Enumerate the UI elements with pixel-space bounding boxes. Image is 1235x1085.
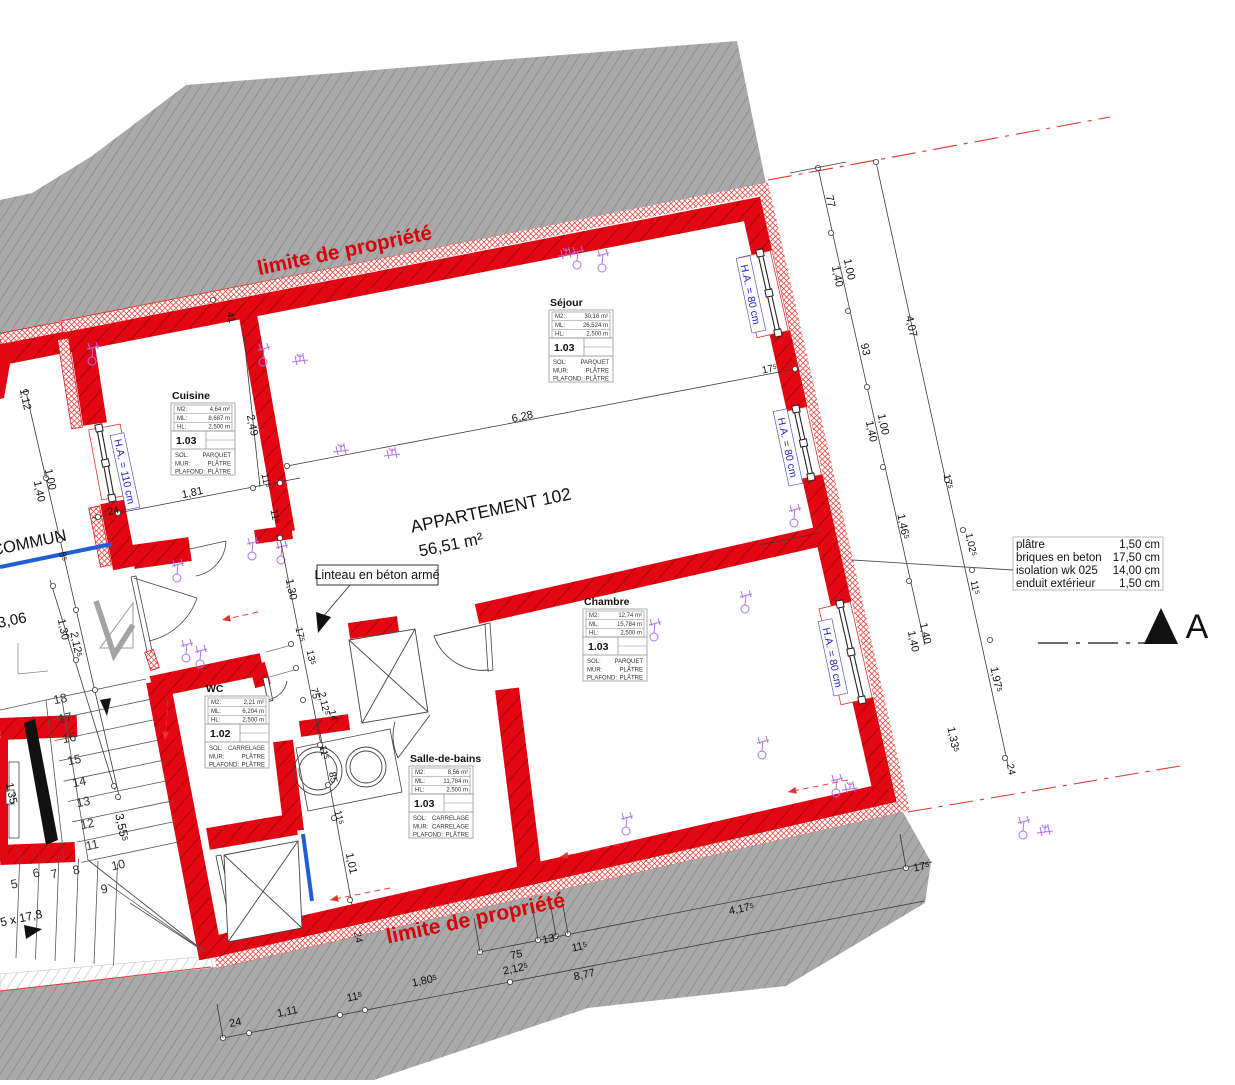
svg-text:16: 16 — [61, 730, 78, 747]
svg-text:MUR:: MUR: — [175, 461, 191, 467]
svg-text:MUR:: MUR: — [553, 368, 569, 374]
svg-text:11,784 m: 11,784 m — [443, 779, 468, 785]
svg-text:PLÂTRE: PLÂTRE — [208, 469, 231, 476]
svg-text:12,74 m²: 12,74 m² — [618, 613, 642, 619]
svg-text:PARQUET: PARQUET — [580, 360, 609, 366]
svg-text:M2:: M2: — [211, 700, 221, 706]
svg-text:14: 14 — [71, 774, 88, 791]
svg-text:13: 13 — [75, 794, 92, 811]
svg-text:12: 12 — [79, 816, 96, 833]
svg-text:HL:: HL: — [555, 332, 565, 338]
svg-text:24: 24 — [228, 1016, 242, 1030]
svg-text:ML:: ML: — [177, 416, 187, 422]
svg-text:4,64 m²: 4,64 m² — [210, 407, 230, 413]
svg-text:M2:: M2: — [555, 314, 565, 320]
svg-text:10: 10 — [110, 857, 127, 874]
svg-text:CARRELAGE: CARRELAGE — [432, 816, 469, 822]
svg-text:2,500 m: 2,500 m — [586, 332, 608, 338]
svg-text:Chambre: Chambre — [584, 596, 630, 608]
svg-text:1.03: 1.03 — [176, 435, 197, 447]
svg-text:93: 93 — [858, 342, 872, 356]
svg-text:PLAFOND:: PLAFOND: — [413, 833, 443, 839]
svg-text:ML:: ML: — [415, 779, 425, 785]
svg-text:8,687 m: 8,687 m — [208, 416, 230, 422]
svg-text:PLÂTRE: PLÂTRE — [242, 762, 265, 769]
svg-text:Linteau en béton armé: Linteau en béton armé — [314, 568, 439, 582]
svg-text:SOL:: SOL: — [553, 360, 567, 366]
svg-text:HL:: HL: — [415, 788, 425, 794]
svg-text:30,16 m²: 30,16 m² — [584, 314, 608, 320]
svg-text:ML:: ML: — [211, 709, 221, 715]
svg-text:HL:: HL: — [177, 425, 187, 431]
svg-text:CARRELAGE: CARRELAGE — [228, 746, 265, 752]
svg-text:SOL:: SOL: — [587, 659, 601, 665]
svg-text:26,524 m: 26,524 m — [583, 323, 608, 329]
svg-text:SOL:: SOL: — [413, 816, 427, 822]
svg-text:6,204 m: 6,204 m — [242, 709, 264, 715]
svg-text:SOL:: SOL: — [209, 746, 223, 752]
svg-text:PLAFOND:: PLAFOND: — [209, 763, 239, 769]
svg-text:18: 18 — [52, 691, 69, 708]
svg-text:PLÂTRE: PLÂTRE — [446, 832, 469, 839]
svg-text:PLAFOND:: PLAFOND: — [175, 470, 205, 476]
svg-text:77: 77 — [823, 194, 837, 208]
svg-text:17: 17 — [57, 710, 74, 727]
svg-text:M2:: M2: — [177, 407, 187, 413]
svg-text:briques en beton: briques en beton — [1016, 552, 1102, 564]
svg-text:PLÂTRE: PLÂTRE — [620, 675, 643, 682]
svg-text:2,500 m: 2,500 m — [208, 425, 230, 431]
svg-text:2,500 m: 2,500 m — [620, 631, 642, 637]
svg-text:PLÂTRE: PLÂTRE — [586, 367, 609, 374]
svg-text:PARQUET: PARQUET — [202, 453, 231, 459]
svg-text:1,50 cm: 1,50 cm — [1119, 578, 1160, 590]
svg-text:2,21 m²: 2,21 m² — [244, 700, 264, 706]
svg-text:HL:: HL: — [589, 631, 599, 637]
svg-text:MUR:: MUR: — [209, 754, 225, 760]
svg-text:PLAFOND:: PLAFOND: — [553, 377, 583, 383]
svg-text:2,500 m: 2,500 m — [446, 788, 468, 794]
svg-text:PLÂTRE: PLÂTRE — [242, 753, 265, 760]
svg-text:MUR:: MUR: — [587, 667, 603, 673]
svg-text:Séjour: Séjour — [550, 297, 583, 309]
svg-text:isolation wk 025: isolation wk 025 — [1016, 565, 1098, 577]
svg-text:M2:: M2: — [415, 770, 425, 776]
svg-text:PLÂTRE: PLÂTRE — [586, 376, 609, 383]
svg-text:MUR:: MUR: — [413, 824, 429, 830]
svg-text:17,50 cm: 17,50 cm — [1113, 552, 1160, 564]
svg-text:1.03: 1.03 — [414, 798, 435, 810]
svg-text:ML:: ML: — [589, 622, 599, 628]
svg-text:14,00 cm: 14,00 cm — [1113, 565, 1160, 577]
svg-text:PLAFOND:: PLAFOND: — [587, 676, 617, 682]
svg-text:SOL:: SOL: — [175, 453, 189, 459]
svg-text:1,50 cm: 1,50 cm — [1119, 539, 1160, 551]
svg-text:2,500 m: 2,500 m — [242, 718, 264, 724]
svg-text:8,56 m²: 8,56 m² — [448, 770, 468, 776]
svg-text:PLÂTRE: PLÂTRE — [208, 460, 231, 467]
svg-text:HL:: HL: — [211, 718, 221, 724]
svg-text:1.03: 1.03 — [554, 342, 575, 354]
svg-text:15: 15 — [66, 752, 83, 769]
svg-text:Cuisine: Cuisine — [172, 390, 210, 402]
svg-text:1.02: 1.02 — [210, 728, 231, 740]
svg-text:PARQUET: PARQUET — [614, 659, 643, 665]
svg-text:M2:: M2: — [589, 613, 599, 619]
svg-text:CARRELAGE: CARRELAGE — [432, 824, 469, 830]
svg-text:PLÂTRE: PLÂTRE — [620, 666, 643, 673]
svg-text:plâtre: plâtre — [1016, 539, 1045, 551]
svg-text:WC: WC — [206, 683, 224, 695]
svg-text:ML:: ML: — [555, 323, 565, 329]
svg-text:enduit extérieur: enduit extérieur — [1016, 578, 1095, 590]
svg-text:Salle-de-bains: Salle-de-bains — [410, 753, 481, 765]
svg-text:A: A — [1186, 608, 1209, 646]
svg-text:15,784 m: 15,784 m — [617, 622, 642, 628]
svg-text:1.03: 1.03 — [588, 641, 609, 653]
svg-text:75: 75 — [509, 948, 523, 962]
